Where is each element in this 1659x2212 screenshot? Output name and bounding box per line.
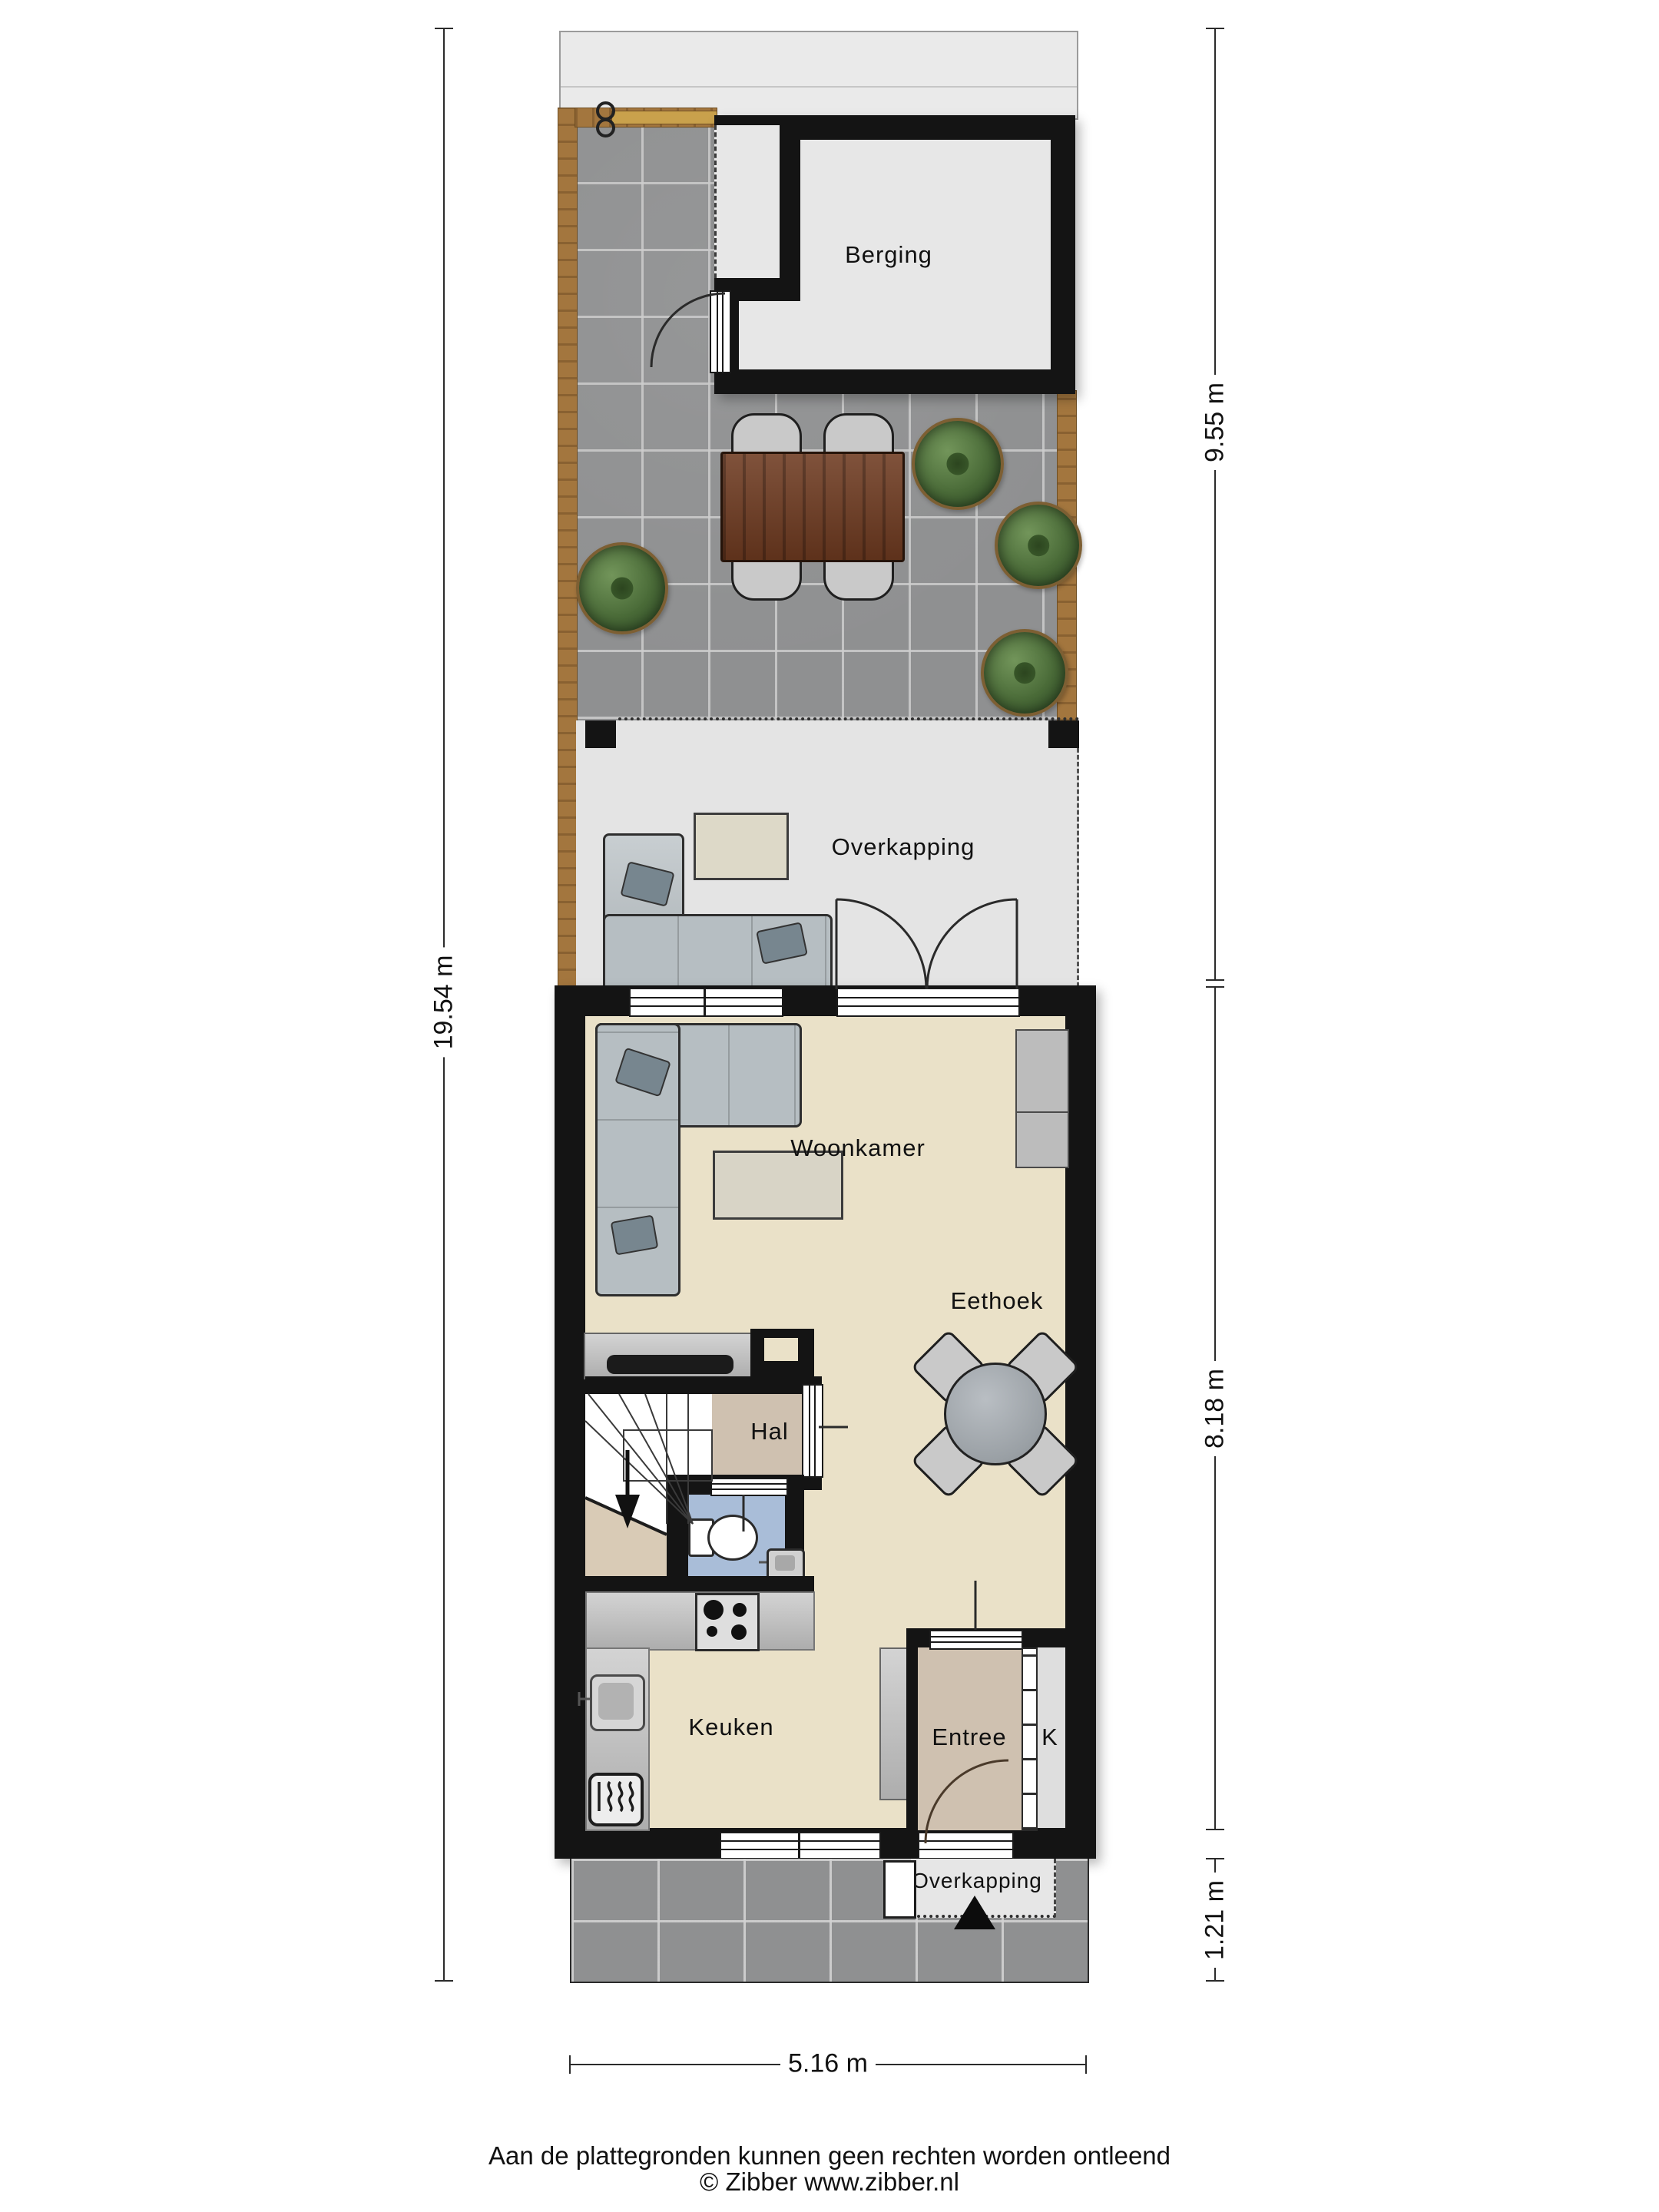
footer-copyright: © Zibber www.zibber.nl <box>700 2167 959 2197</box>
cooktop <box>695 1593 760 1651</box>
burner <box>704 1600 724 1620</box>
gate-hinge-icon <box>596 118 615 137</box>
room-label-entree: Entree <box>932 1724 1006 1751</box>
front-door-leaf-open <box>883 1860 916 1919</box>
flue-notch <box>764 1338 798 1361</box>
room-label-overkapping-garden: Overkapping <box>832 833 975 861</box>
toilet-bowl <box>707 1515 758 1561</box>
french-door-frame <box>836 988 1020 1017</box>
room-label-overkapping-front: Overkapping <box>912 1869 1042 1893</box>
dim-line-garden <box>1214 28 1216 981</box>
room-label-keuken: Keuken <box>688 1714 773 1741</box>
entree-left-wall <box>906 1628 918 1859</box>
heater-icon <box>588 1773 644 1826</box>
burner <box>733 1603 747 1617</box>
path-divider-line <box>561 86 1077 88</box>
hall-block-bottom-wall <box>585 1576 814 1591</box>
wc-sink-basin <box>775 1555 795 1571</box>
plant-icon <box>576 542 668 634</box>
room-label-eethoek: Eethoek <box>951 1287 1044 1315</box>
dim-width: 5.16 m <box>780 2046 876 2082</box>
berging-door <box>710 290 731 373</box>
plant-icon <box>912 418 1004 510</box>
coffee-table-canopy <box>694 813 789 880</box>
room-label-hal: Hal <box>750 1418 789 1445</box>
front-door-frame <box>918 1832 1014 1859</box>
overkapping-garden-dashed-edge-right <box>1077 720 1079 987</box>
dim-garden-depth: 9.55 m <box>1197 375 1233 470</box>
footer-disclaimer: Aan de plattegronden kunnen geen rechten… <box>488 2141 1171 2171</box>
kitchen-sink-basin <box>598 1683 634 1720</box>
berging-floor-lower <box>739 301 800 369</box>
kitchen-tall-cabinet <box>879 1647 909 1800</box>
burner <box>707 1626 717 1637</box>
room-label-kast: K <box>1041 1724 1058 1751</box>
berging-porch-recess <box>714 125 780 278</box>
canopy-post <box>1048 720 1079 748</box>
garden-gate <box>611 111 717 124</box>
kitchen-window <box>720 1832 881 1859</box>
dim-total-depth: 19.54 m <box>426 948 462 1058</box>
sideboard <box>1015 1029 1069 1168</box>
kitchen-sink <box>590 1674 645 1731</box>
round-dining-table <box>944 1363 1047 1465</box>
living-window <box>629 988 783 1017</box>
burner <box>731 1624 747 1640</box>
fence-left <box>558 108 578 988</box>
room-label-berging: Berging <box>845 241 932 269</box>
window-mullion <box>704 989 706 1015</box>
dim-house-depth: 8.18 m <box>1197 1361 1233 1456</box>
garden-dining-table <box>720 452 905 562</box>
stairs-wc-wall <box>667 1475 688 1586</box>
tv-icon <box>607 1355 733 1374</box>
plant-icon <box>995 502 1082 589</box>
overkapping-garden-dotted-edge-top <box>618 717 1079 720</box>
closet-shelves <box>1022 1647 1038 1831</box>
canopy-post <box>585 720 616 748</box>
floorplan-page: Berging Overkapping Woonkamer Eethoek <box>0 0 1659 2212</box>
room-label-woonkamer: Woonkamer <box>790 1134 926 1162</box>
wc-door <box>710 1478 788 1496</box>
dim-porch-depth: 1.21 m <box>1197 1873 1233 1968</box>
window-mullion <box>798 1833 800 1858</box>
eethoek-entree-door <box>929 1630 1023 1650</box>
garden-path-strip <box>559 31 1078 120</box>
plant-icon <box>981 629 1068 717</box>
hall-door <box>802 1384 823 1478</box>
